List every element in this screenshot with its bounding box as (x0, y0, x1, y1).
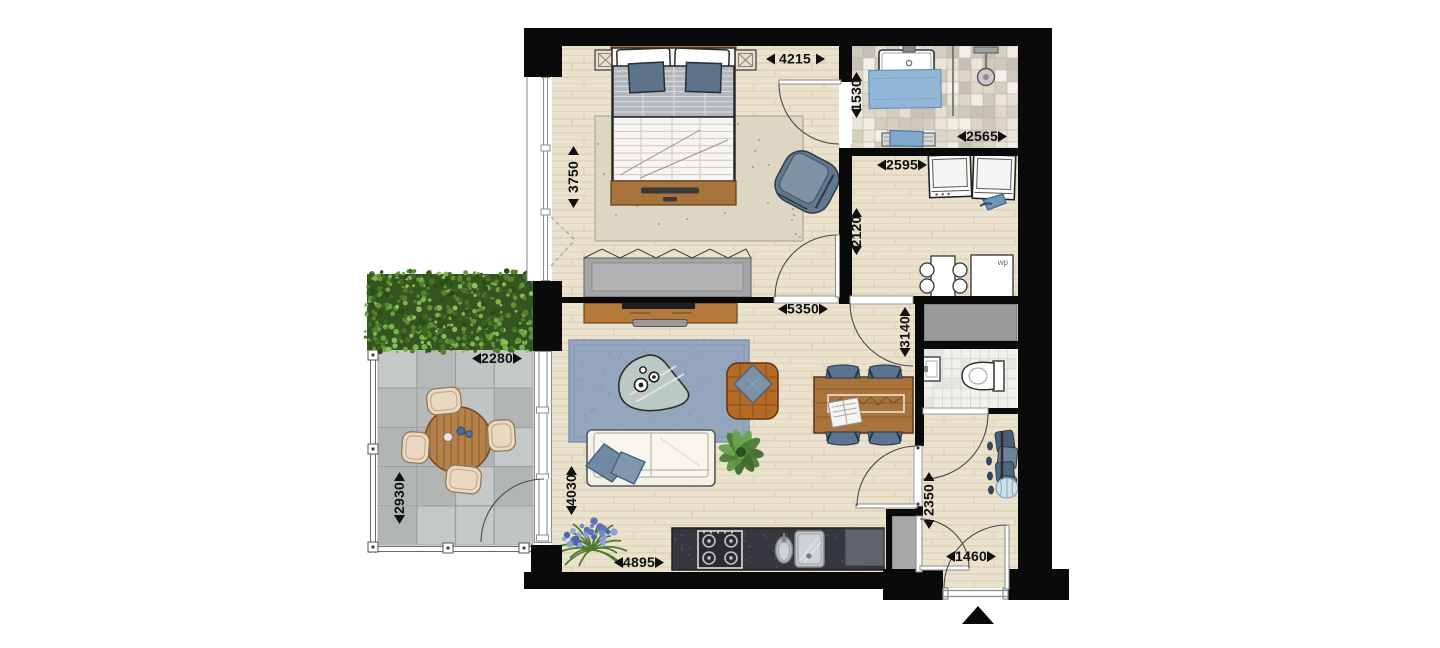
svg-text:3750: 3750 (565, 161, 581, 193)
svg-text:2565: 2565 (966, 128, 998, 144)
svg-text:4895: 4895 (623, 554, 655, 570)
svg-text:2120: 2120 (848, 216, 864, 248)
svg-text:4215: 4215 (779, 51, 811, 67)
svg-text:4030: 4030 (563, 474, 579, 506)
svg-text:2930: 2930 (391, 482, 407, 514)
svg-text:5350: 5350 (787, 301, 819, 317)
svg-text:2595: 2595 (886, 157, 918, 173)
svg-text:2350: 2350 (921, 484, 937, 516)
svg-text:1530: 1530 (848, 79, 864, 111)
svg-text:2280: 2280 (481, 350, 513, 366)
svg-text:1460: 1460 (955, 548, 987, 564)
svg-text:3140: 3140 (897, 316, 913, 348)
svg-text:wp: wp (997, 258, 1009, 267)
